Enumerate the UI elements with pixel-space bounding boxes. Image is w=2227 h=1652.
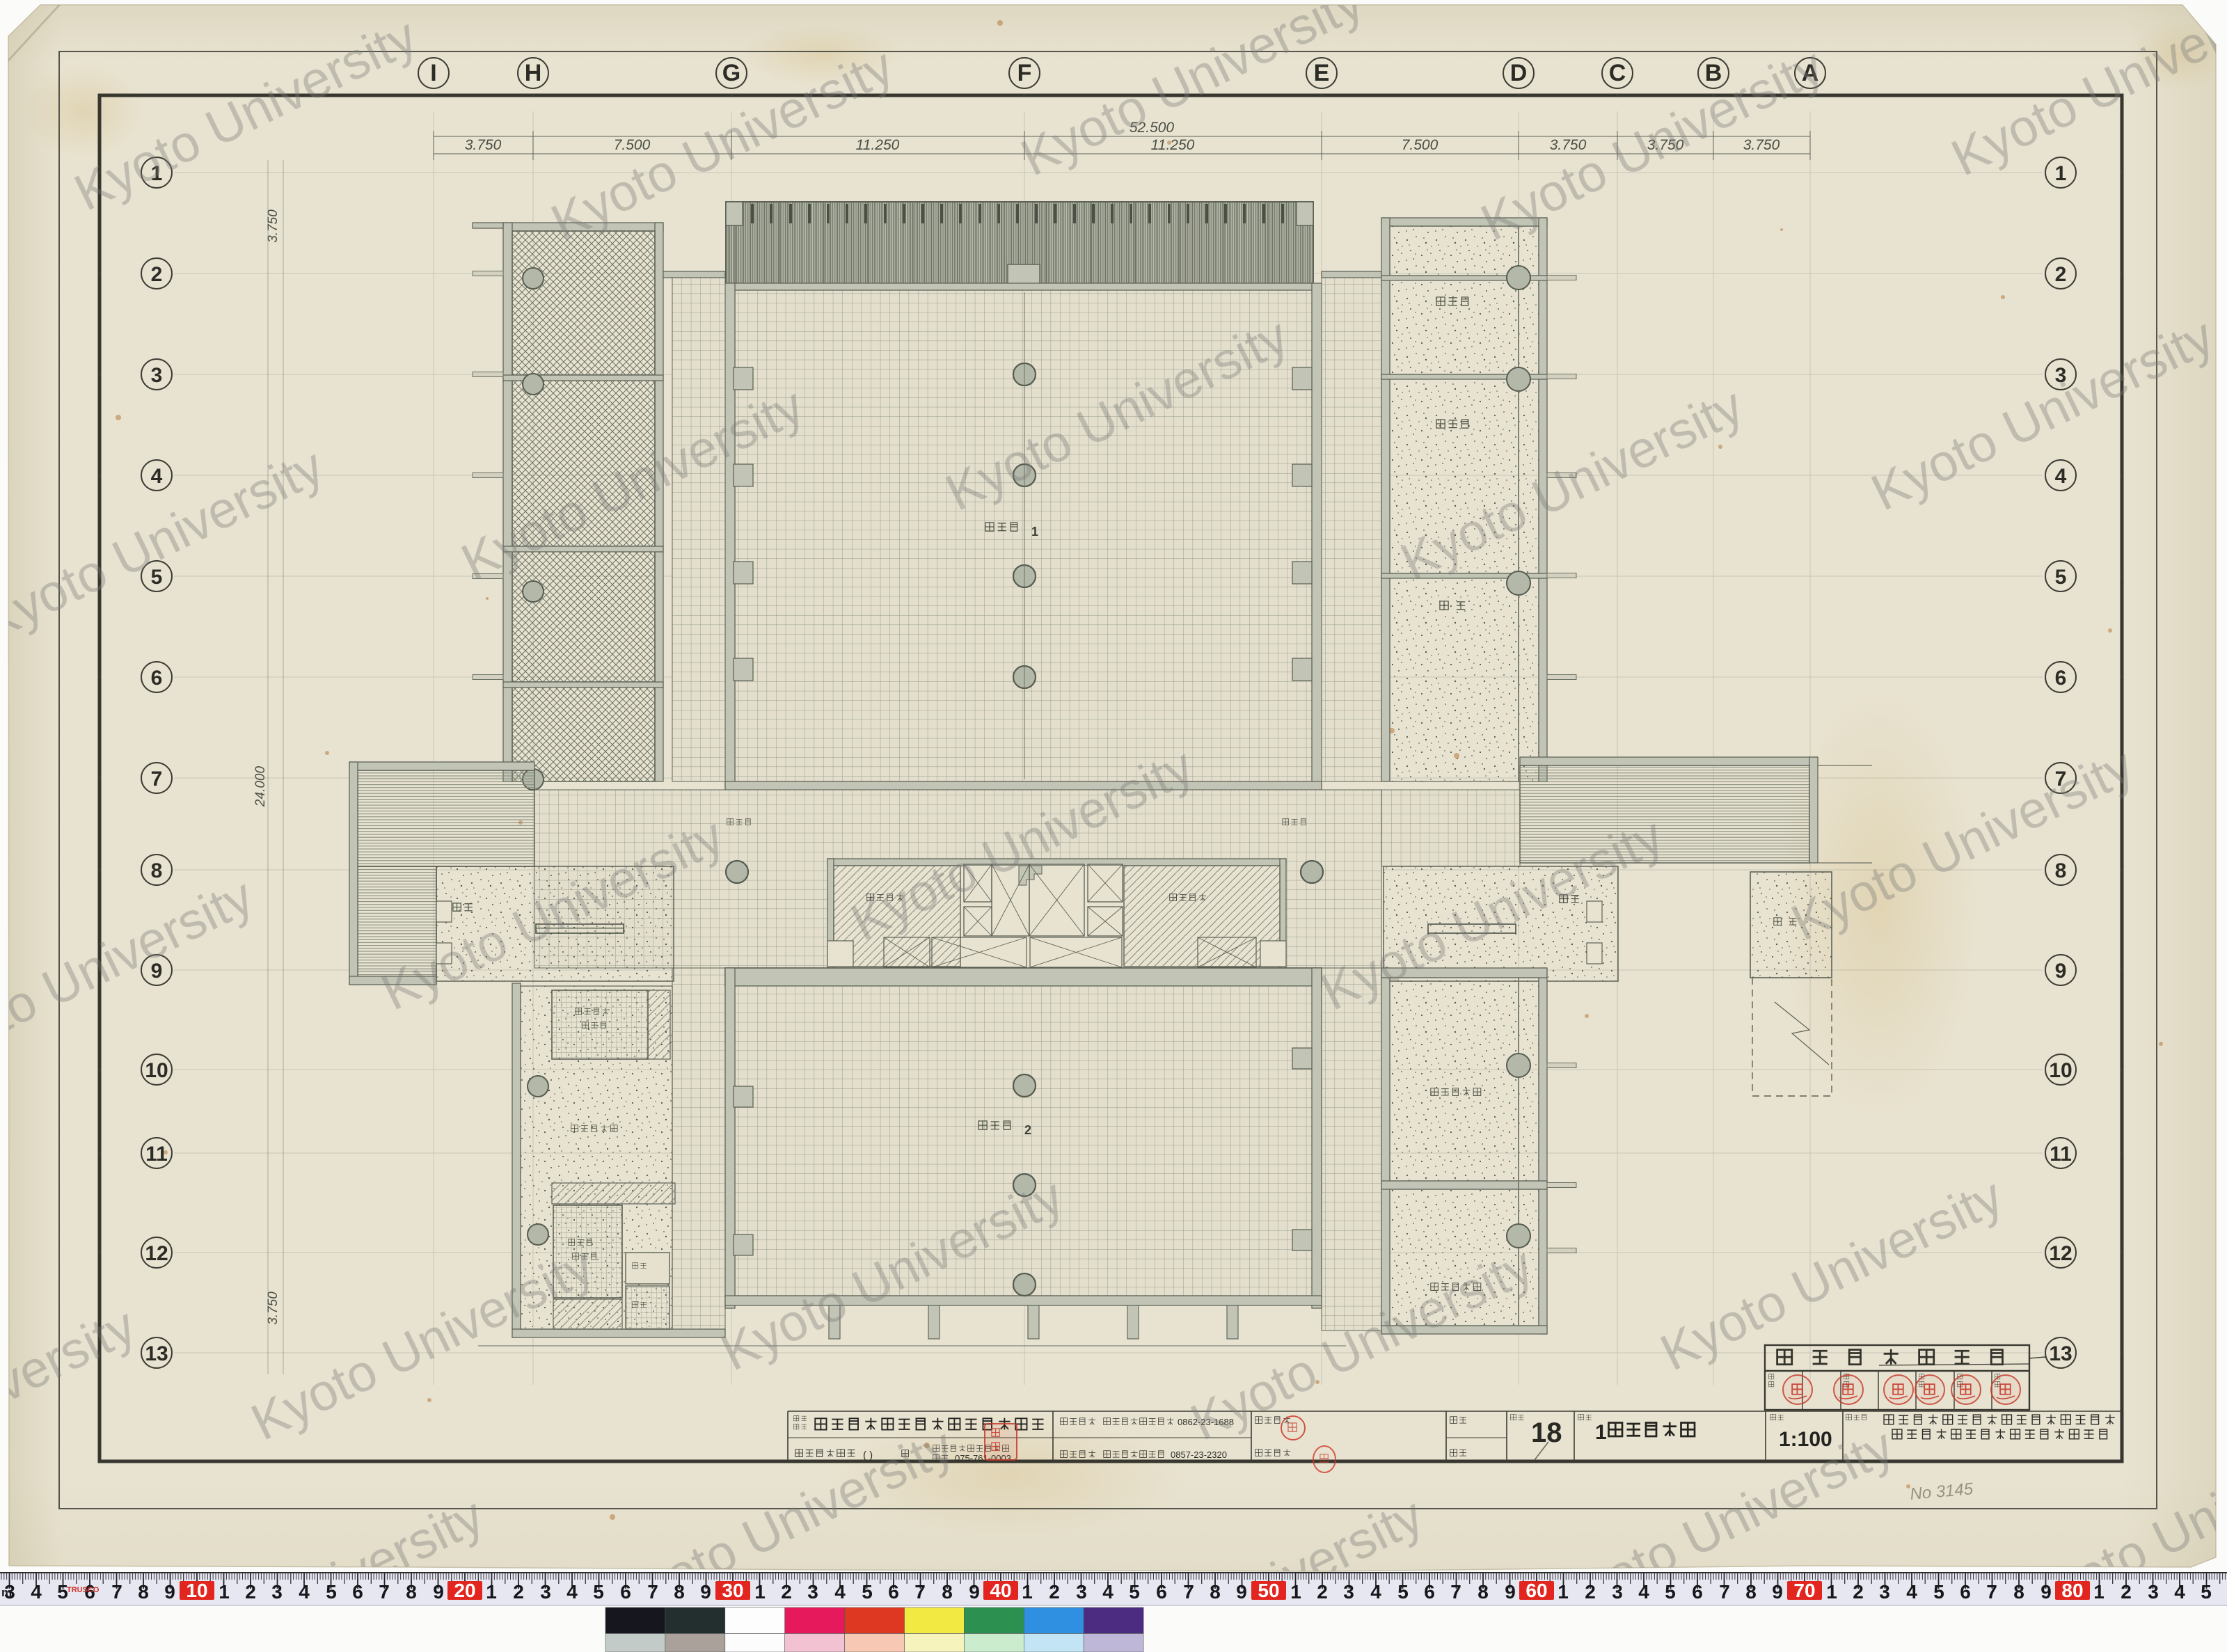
svg-text:9: 9: [2040, 1581, 2052, 1603]
svg-text:40: 40: [990, 1580, 1011, 1601]
svg-text:1: 1: [486, 1581, 497, 1603]
svg-text:7: 7: [379, 1581, 390, 1603]
svg-text:1: 1: [1022, 1581, 1033, 1603]
svg-text:9: 9: [164, 1581, 175, 1603]
svg-text:4: 4: [1370, 1581, 1381, 1603]
svg-text:4: 4: [151, 465, 163, 488]
svg-text:E: E: [1314, 60, 1330, 86]
svg-text:12: 12: [2049, 1242, 2072, 1265]
svg-text:6: 6: [1692, 1581, 1703, 1603]
svg-text:6: 6: [1960, 1581, 1971, 1603]
svg-text:9: 9: [433, 1581, 444, 1603]
svg-text:6: 6: [352, 1581, 363, 1603]
svg-text:7: 7: [1183, 1581, 1194, 1603]
svg-text:1: 1: [1826, 1581, 1837, 1603]
svg-text:2: 2: [151, 263, 163, 286]
svg-text:9: 9: [969, 1581, 980, 1603]
svg-text:3.750: 3.750: [465, 137, 502, 153]
svg-text:4: 4: [31, 1581, 42, 1603]
svg-text:5: 5: [2201, 1581, 2212, 1603]
svg-text:6: 6: [1156, 1581, 1167, 1603]
svg-text:10: 10: [145, 1059, 168, 1082]
svg-text:8: 8: [1745, 1581, 1757, 1603]
svg-text:6: 6: [2055, 667, 2067, 690]
svg-text:5: 5: [862, 1581, 873, 1603]
svg-text:4: 4: [2174, 1581, 2185, 1603]
svg-text:3.750: 3.750: [266, 209, 280, 243]
svg-text:1: 1: [2055, 162, 2067, 185]
svg-text:4: 4: [1638, 1581, 1649, 1603]
svg-text:H: H: [525, 60, 542, 86]
svg-text:3: 3: [540, 1581, 551, 1603]
svg-text:5: 5: [2055, 566, 2067, 589]
svg-text:8: 8: [151, 859, 163, 882]
svg-text:11.250: 11.250: [1151, 137, 1195, 153]
svg-text:F: F: [1017, 60, 1032, 86]
svg-text:6: 6: [620, 1581, 631, 1603]
svg-text:7: 7: [111, 1581, 122, 1603]
svg-text:C: C: [1609, 60, 1626, 86]
svg-text:13: 13: [145, 1342, 168, 1365]
svg-text:1: 1: [754, 1581, 766, 1603]
svg-text:4: 4: [566, 1581, 578, 1603]
svg-text:8: 8: [2055, 859, 2067, 882]
svg-text:3: 3: [807, 1581, 818, 1603]
svg-text:8: 8: [1477, 1581, 1489, 1603]
svg-text:2: 2: [1317, 1581, 1328, 1603]
svg-text:1: 1: [1558, 1581, 1569, 1603]
svg-text:4: 4: [1906, 1581, 1917, 1603]
svg-text:6: 6: [888, 1581, 899, 1603]
svg-text:24.000: 24.000: [253, 766, 268, 808]
svg-text:11: 11: [145, 1143, 168, 1166]
svg-text:TRUSCO: TRUSCO: [67, 1586, 100, 1594]
svg-text:7: 7: [647, 1581, 658, 1603]
svg-text:8: 8: [406, 1581, 417, 1603]
svg-text:3.750: 3.750: [1743, 137, 1780, 153]
svg-text:4: 4: [2055, 465, 2067, 488]
svg-text:80: 80: [2061, 1580, 2083, 1601]
svg-text:5: 5: [1933, 1581, 1944, 1603]
svg-text:4: 4: [1102, 1581, 1113, 1603]
svg-text:7: 7: [151, 768, 163, 791]
svg-text:7: 7: [1719, 1581, 1730, 1603]
svg-text:11.250: 11.250: [856, 137, 900, 153]
svg-text:2: 2: [1853, 1581, 1864, 1603]
svg-text:1: 1: [1595, 1421, 1607, 1444]
svg-text:2: 2: [245, 1581, 256, 1603]
svg-text:8: 8: [674, 1581, 685, 1603]
svg-text:8: 8: [2013, 1581, 2024, 1603]
svg-text:4: 4: [834, 1581, 846, 1603]
svg-text:50: 50: [1258, 1580, 1279, 1601]
svg-text:7: 7: [1450, 1581, 1461, 1603]
svg-text:9: 9: [700, 1581, 711, 1603]
svg-text:D: D: [1510, 60, 1528, 86]
svg-text:7: 7: [1986, 1581, 1997, 1603]
svg-text:2: 2: [1585, 1581, 1596, 1603]
svg-text:2: 2: [1024, 1123, 1031, 1137]
svg-text:5: 5: [326, 1581, 337, 1603]
svg-text:10: 10: [2049, 1059, 2072, 1082]
svg-text:6: 6: [151, 667, 163, 690]
svg-text:0857-23-2320: 0857-23-2320: [1171, 1450, 1227, 1460]
svg-text:2: 2: [2121, 1581, 2132, 1603]
svg-text:3: 3: [1343, 1581, 1354, 1603]
svg-text:10: 10: [186, 1580, 207, 1601]
svg-text:G: G: [722, 60, 740, 86]
svg-text:5: 5: [1129, 1581, 1140, 1603]
svg-text:2: 2: [781, 1581, 792, 1603]
svg-text:2: 2: [513, 1581, 524, 1603]
svg-text:11: 11: [2050, 1143, 2072, 1166]
svg-text:3: 3: [2148, 1581, 2159, 1603]
svg-text:13: 13: [2049, 1342, 2072, 1365]
svg-text:3: 3: [1076, 1581, 1087, 1603]
svg-text:60: 60: [1525, 1580, 1547, 1601]
svg-text:1: 1: [1031, 525, 1038, 539]
svg-text:3: 3: [151, 364, 163, 387]
svg-text:I: I: [430, 60, 436, 86]
svg-text:3: 3: [1879, 1581, 1890, 1603]
svg-text:20: 20: [454, 1580, 475, 1601]
svg-text:1: 1: [1290, 1581, 1301, 1603]
svg-text:4: 4: [299, 1581, 310, 1603]
svg-text:12: 12: [145, 1242, 168, 1265]
svg-text:18: 18: [1531, 1417, 1562, 1448]
svg-text:8: 8: [942, 1581, 953, 1603]
svg-text:5: 5: [1397, 1581, 1409, 1603]
svg-text:9: 9: [1505, 1581, 1516, 1603]
svg-text:7.500: 7.500: [1402, 137, 1439, 153]
svg-text:1: 1: [219, 1581, 230, 1603]
svg-text:5: 5: [593, 1581, 604, 1603]
svg-text:6: 6: [1424, 1581, 1435, 1603]
svg-text:5: 5: [1665, 1581, 1676, 1603]
svg-text:9: 9: [1772, 1581, 1783, 1603]
svg-text:70: 70: [1793, 1580, 1815, 1601]
svg-text:3.750: 3.750: [266, 1292, 280, 1325]
svg-text:m: m: [1, 1586, 12, 1599]
svg-text:9: 9: [1236, 1581, 1247, 1603]
svg-text:30: 30: [722, 1580, 743, 1601]
svg-text:1: 1: [2093, 1581, 2105, 1603]
svg-text:9: 9: [2055, 960, 2067, 983]
svg-text:3: 3: [271, 1581, 283, 1603]
svg-text:2: 2: [2055, 263, 2067, 286]
svg-text:2: 2: [1049, 1581, 1060, 1603]
svg-text:7: 7: [914, 1581, 926, 1603]
svg-text:3: 3: [1612, 1581, 1623, 1603]
svg-text:8: 8: [1210, 1581, 1221, 1603]
svg-text:8: 8: [138, 1581, 149, 1603]
